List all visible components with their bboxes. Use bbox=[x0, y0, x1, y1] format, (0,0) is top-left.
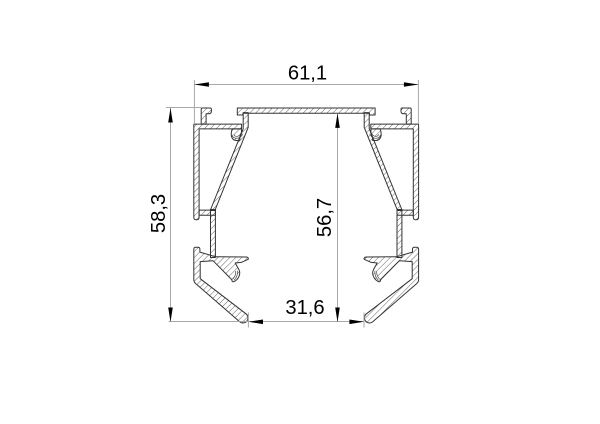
svg-text:31,6: 31,6 bbox=[285, 297, 324, 319]
svg-text:56,7: 56,7 bbox=[314, 198, 336, 237]
svg-text:61,1: 61,1 bbox=[288, 62, 327, 84]
svg-text:58,3: 58,3 bbox=[148, 194, 170, 233]
